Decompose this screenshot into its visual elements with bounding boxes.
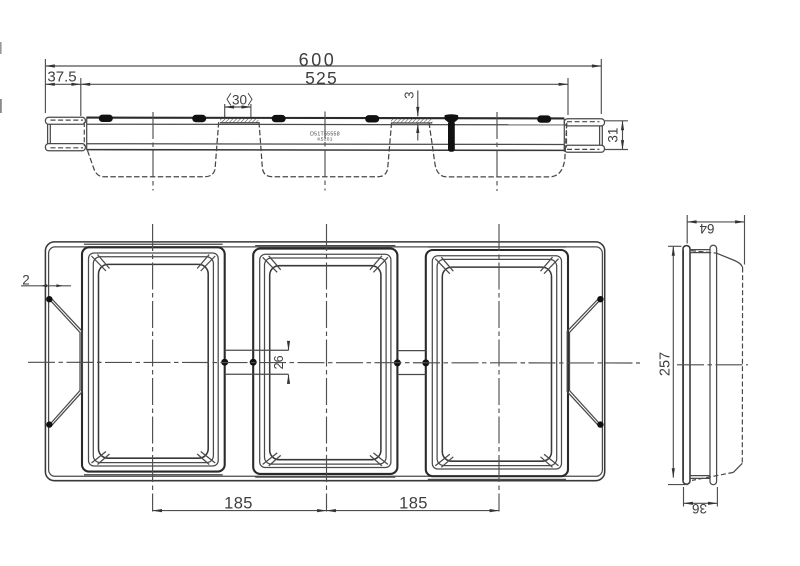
svg-text:185: 185 [399,495,428,513]
svg-text:37.5: 37.5 [47,69,76,86]
svg-text:31: 31 [605,128,620,143]
svg-text:64: 64 [699,221,715,236]
svg-text:36: 36 [692,501,707,516]
svg-text:257: 257 [657,352,673,376]
svg-text:〈30〉: 〈30〉 [218,93,260,108]
svg-text:185: 185 [224,495,253,513]
svg-text:525: 525 [305,68,338,88]
svg-text:K5201: K5201 [317,136,332,142]
svg-text:3: 3 [402,92,417,99]
svg-text:600: 600 [299,50,337,70]
svg-text:D51T55558: D51T55558 [310,131,340,137]
